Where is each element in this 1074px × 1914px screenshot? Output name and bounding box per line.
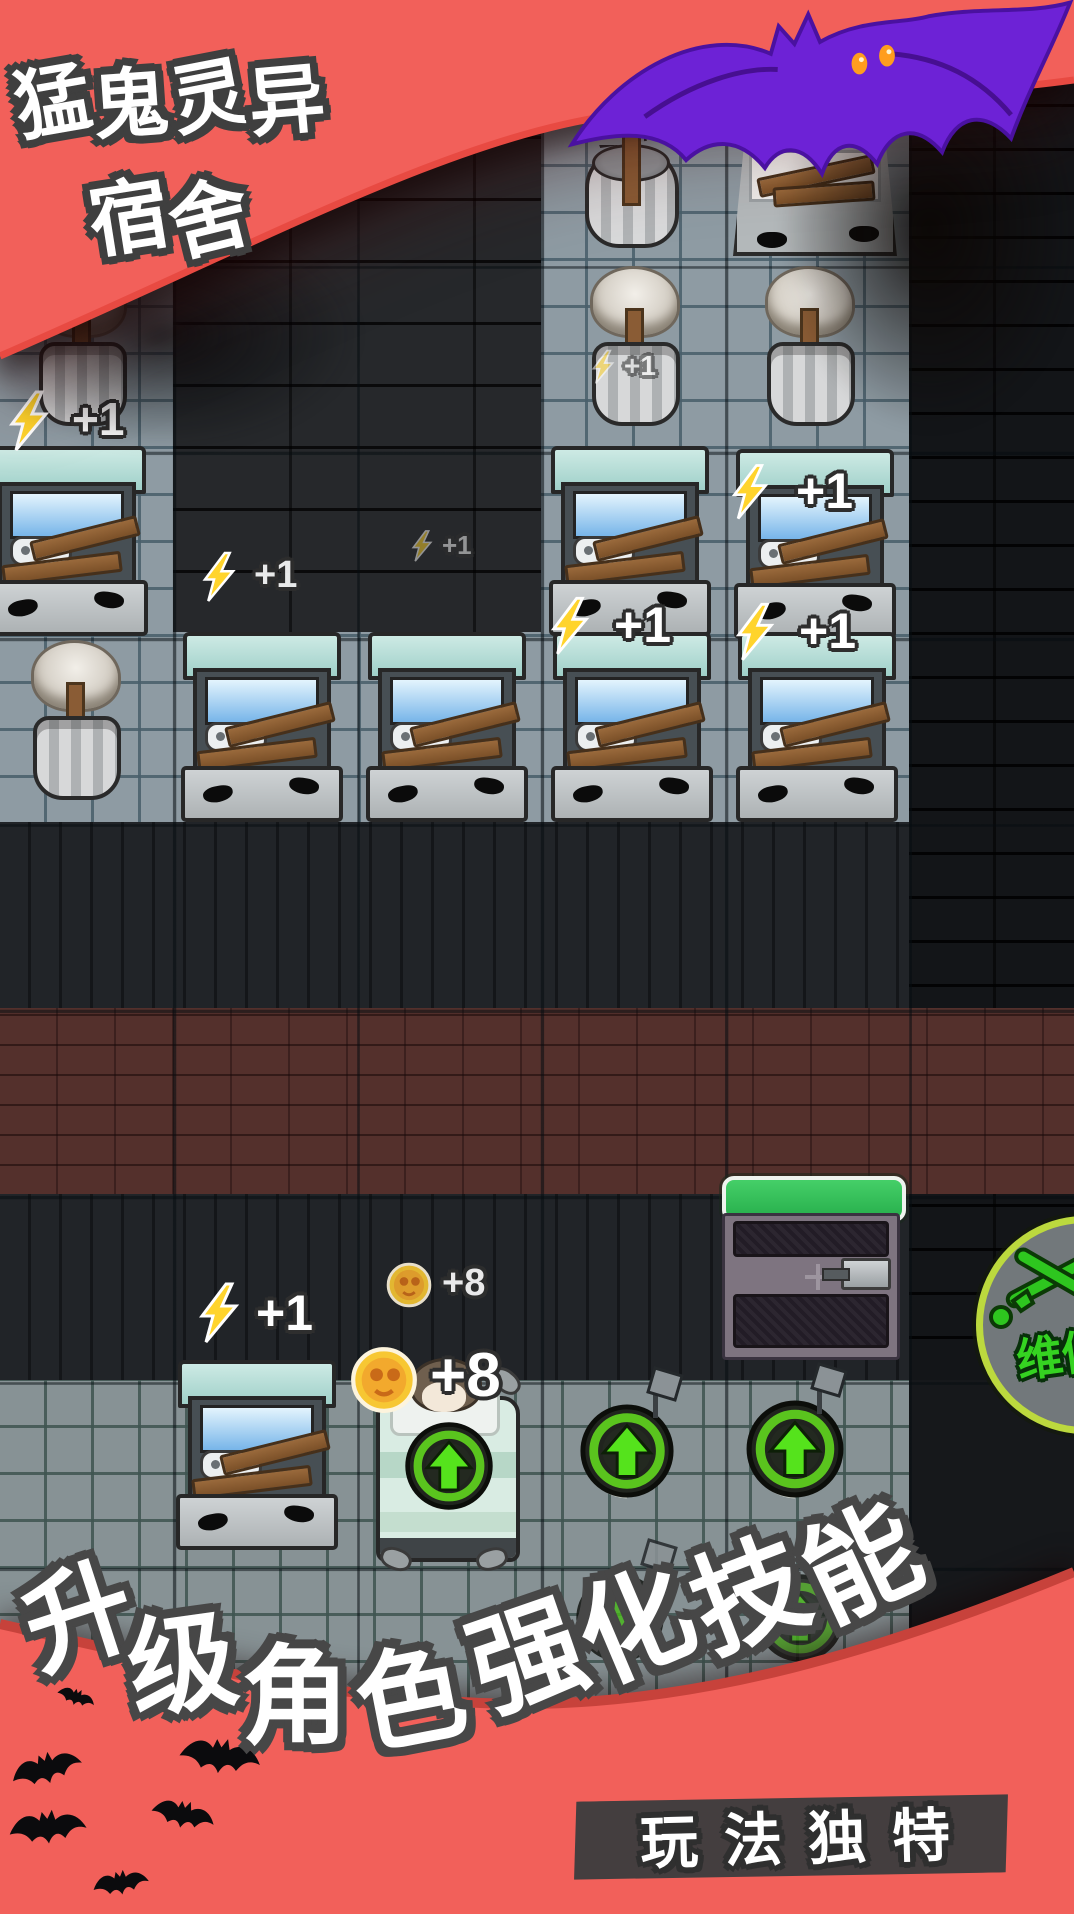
floater-value: +8 — [430, 1340, 501, 1411]
floater-value: +1 — [254, 554, 297, 597]
floater-value: +1 — [256, 1284, 313, 1342]
dorm-door[interactable] — [722, 1213, 900, 1360]
bat-eye — [879, 45, 895, 67]
door-handle — [841, 1258, 891, 1290]
purple-bat-icon — [566, 0, 1074, 208]
floater-value: +1 — [72, 392, 124, 446]
feature-banner-label: 玩法独特 — [597, 1787, 1019, 1882]
bat-eye — [852, 53, 868, 75]
lightning-icon — [733, 600, 777, 664]
arcade-machine[interactable] — [551, 632, 713, 818]
black-bat-icon — [6, 1803, 89, 1854]
mop-bucket[interactable] — [26, 640, 120, 792]
arcade-machine[interactable] — [0, 446, 148, 632]
lightning-icon — [410, 528, 434, 564]
game-screenshot: +1 +1 +1 +1 +1 +1 +1 +1 +8 +8 — [0, 0, 1074, 1914]
game-title: 猛鬼灵异 宿舍 — [12, 31, 332, 274]
coin-icon — [386, 1262, 432, 1308]
floater-value: +1 — [442, 530, 472, 561]
lightning-icon — [729, 461, 771, 523]
floater-value: +8 — [442, 1262, 485, 1305]
flag-icon — [626, 1364, 686, 1422]
flag-icon — [790, 1360, 850, 1418]
lightning-icon — [200, 550, 238, 604]
arcade-machine[interactable] — [176, 1360, 338, 1546]
floater-value: +1 — [796, 462, 853, 520]
repair-button[interactable]: 维修 — [976, 1216, 1074, 1434]
lightning-icon — [6, 390, 52, 452]
upgrade-button[interactable] — [403, 1420, 495, 1512]
floater-value: +1 — [614, 596, 671, 654]
dark-plank-floor-upper — [0, 822, 909, 1008]
floater-value: +1 — [799, 602, 856, 660]
red-brick-band — [0, 1008, 1074, 1194]
arcade-machine[interactable] — [366, 632, 528, 818]
coin-icon — [350, 1346, 418, 1414]
game-title-line2: 宿舍 — [86, 147, 332, 271]
lightning-icon — [196, 1280, 242, 1346]
caption-upgrade-character: 升级角色 — [17, 1527, 459, 1713]
arcade-machine[interactable] — [181, 632, 343, 818]
lightning-icon — [548, 594, 592, 658]
game-title-line1: 猛鬼灵异 — [12, 31, 328, 152]
